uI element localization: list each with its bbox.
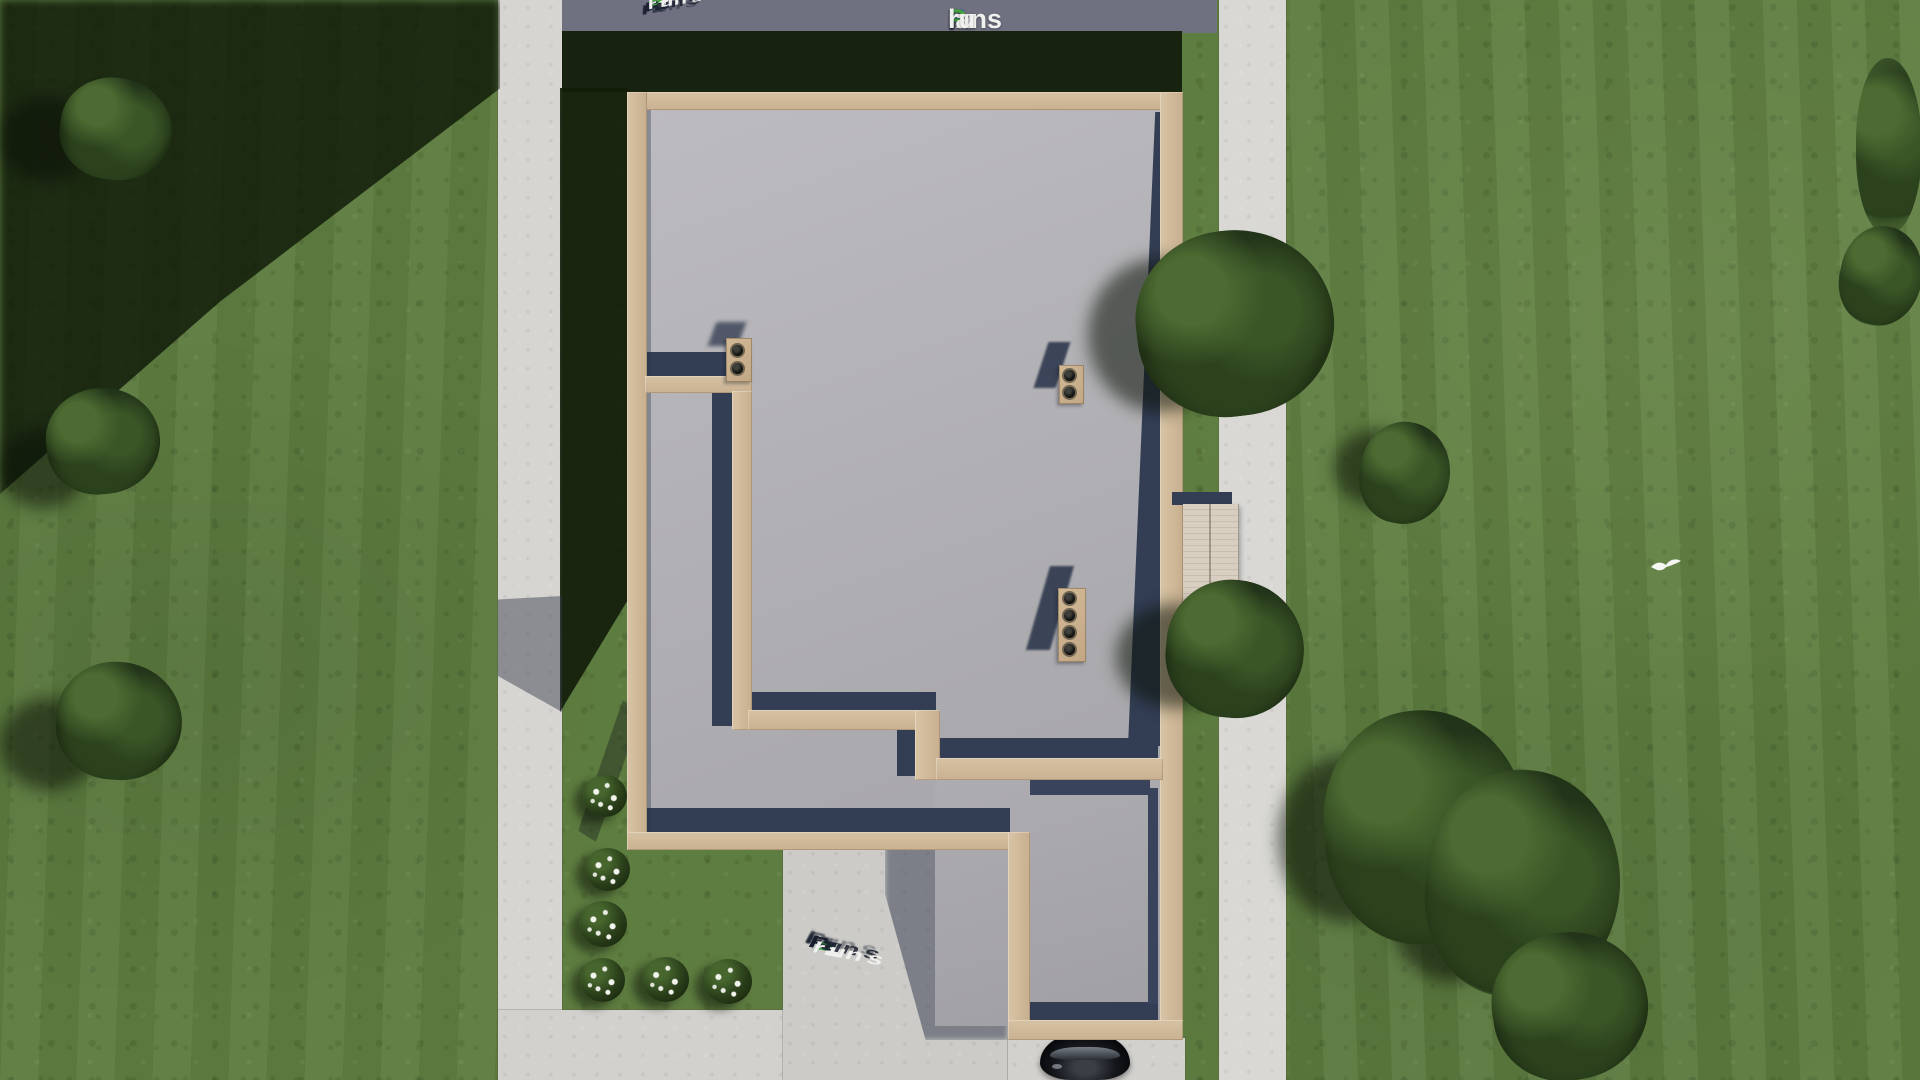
vent-icon [1062,385,1077,400]
wall-garage-west [1008,832,1030,1038]
vent-icon [1062,625,1077,640]
flower-bush [583,775,627,817]
interior-wall-a-shadow [712,393,732,726]
sidewalk-left [498,0,562,1012]
vent-icon [1062,642,1077,657]
vent-icon [730,361,745,376]
watermark-part: ru [948,4,975,35]
vent-icon [1062,608,1077,623]
wall-north [627,92,1183,110]
tree-edge-right-top [1856,58,1920,234]
garage-east-shadow [1148,788,1158,1004]
car-headlight-glint [1052,1064,1062,1069]
wall-west [627,92,647,850]
flower-bush [579,901,627,947]
interior-wall-c [936,758,1163,780]
vent-icon [1062,591,1077,606]
vent-icon [730,343,745,358]
chimney-3 [1058,588,1086,662]
garage-floor-slab [935,756,1165,1026]
interior-wall-a [732,391,752,730]
flower-bush [585,848,630,891]
west-wall-interior-line [647,110,651,832]
interior-wall-b-shadow [748,692,936,712]
garage-south-shadow [1030,1002,1158,1022]
step-wall-shadow [897,726,915,776]
wall-south-main [627,832,1030,850]
interior-wall-c-shadow [936,738,1158,758]
interior-wall-b [748,710,940,730]
wall-east [1160,92,1183,1040]
flower-bush [704,959,752,1004]
render-canvas: FixPlans.ru FixPlans.ru FixPlans.ru [0,0,1920,1080]
chimney-1 [726,338,752,382]
flower-bush [642,957,689,1002]
wall-garage-south [1008,1020,1183,1040]
flower-bush [580,958,625,1002]
garage-north-shadow [1030,780,1150,795]
bottom-wall-interior-shadow [645,808,1010,832]
bird-icon [1650,554,1682,580]
shadowed-grass-band-above-house [562,31,1182,92]
vent-icon [1062,368,1077,383]
car [1040,1034,1130,1080]
chimney-2 [1059,365,1084,404]
car-windshield [1050,1047,1120,1060]
